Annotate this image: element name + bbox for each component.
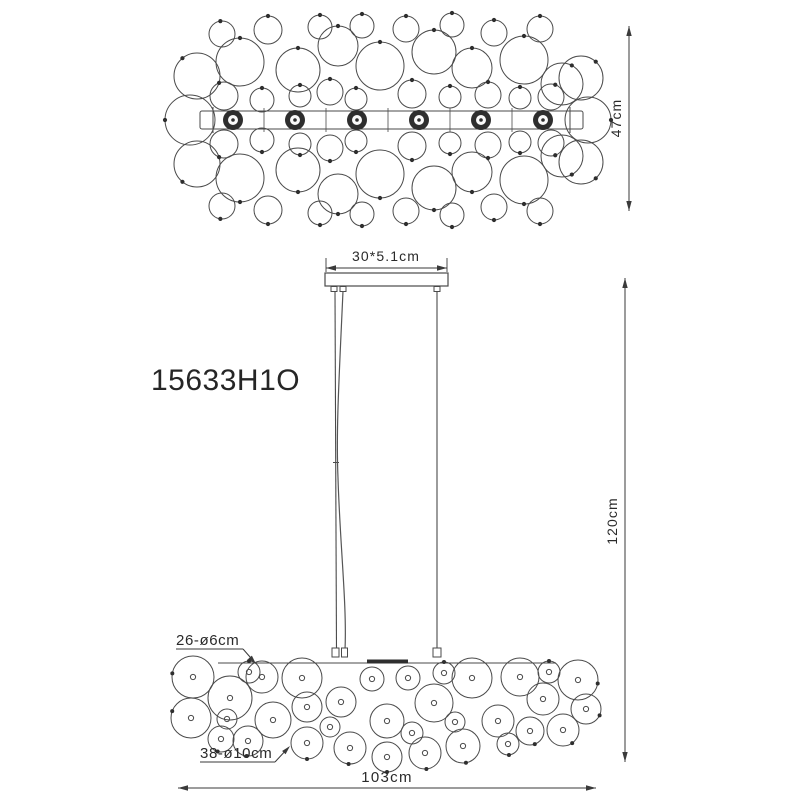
bubble-mount-ring <box>546 669 551 674</box>
bubble-stem-tip <box>170 671 174 675</box>
bubble <box>246 661 278 693</box>
bubble-stem-tip <box>170 709 174 713</box>
bubble <box>174 141 220 187</box>
bubble <box>250 128 274 154</box>
bubble-stem-tip <box>570 172 574 176</box>
bubble <box>356 150 404 200</box>
bubble-stem-tip <box>410 78 414 82</box>
bubble <box>412 166 456 212</box>
width-dimension-label: 103cm <box>361 769 413 786</box>
bubble <box>317 135 343 163</box>
bubble-mount-ring <box>517 674 522 679</box>
bubble <box>209 193 235 221</box>
bubble-stem-tip <box>354 86 358 90</box>
bubble-stem-tip <box>522 34 526 38</box>
bubble-stem-tip <box>404 222 408 226</box>
bubble <box>527 14 553 42</box>
bubble-stem-tip <box>218 19 222 23</box>
bubble <box>289 133 311 157</box>
canopy-outline <box>325 273 448 286</box>
bubble <box>291 727 323 761</box>
ceiling-canopy: 30*5.1cm <box>325 248 448 292</box>
technical-drawing: 47cm 15633H1O 30*5.1cm <box>0 0 800 800</box>
bubble-stem-tip <box>533 742 537 746</box>
bubble <box>308 201 332 227</box>
bubble <box>516 717 544 746</box>
bubble <box>360 667 384 691</box>
height-dimension-label: 120cm <box>604 497 620 545</box>
arrow-down-icon <box>622 752 627 762</box>
bubble-mount-ring <box>540 696 545 701</box>
bubble <box>527 198 553 226</box>
power-cord <box>337 291 345 650</box>
bubble-mount-ring <box>347 745 352 750</box>
bubble-mount-ring <box>527 728 532 733</box>
bubble-stem-tip <box>553 83 557 87</box>
lamp-socket-icon <box>533 110 553 130</box>
side-view: 15633H1O 30*5.1cm <box>151 248 628 791</box>
bubble-stem-tip <box>180 56 184 60</box>
bubble <box>440 203 464 229</box>
bubble-stem-tip <box>486 156 490 160</box>
bubble <box>482 705 514 737</box>
bubble-stem-tip <box>266 222 270 226</box>
bubble <box>401 722 423 744</box>
bubble-stem-tip <box>404 14 408 18</box>
drawing-canvas: 47cm 15633H1O 30*5.1cm <box>0 0 800 800</box>
bubble-stem-tip <box>486 80 490 84</box>
bubble-stem-tip <box>360 224 364 228</box>
bubble-stem-tip <box>238 36 242 40</box>
top-view: 47cm <box>163 11 632 229</box>
bubble-stem-tip <box>378 40 382 44</box>
bubble-stem-tip <box>492 218 496 222</box>
large-globes-label: 38-ø10cm <box>200 745 272 762</box>
suspension-cables <box>332 291 441 657</box>
bubble-stem-tip <box>450 225 454 229</box>
bubble-mount-ring <box>422 750 427 755</box>
bubble-mount-ring <box>245 738 250 743</box>
bubble-mount-ring <box>304 740 309 745</box>
bubble <box>501 658 539 696</box>
arrow-up-icon <box>626 26 631 36</box>
bubble <box>350 12 374 38</box>
lamp-socket-icon <box>409 110 429 130</box>
bubble <box>541 63 583 105</box>
bubble <box>334 732 366 766</box>
cable-fitting <box>342 648 348 657</box>
bubble-stem-tip <box>448 152 452 156</box>
arrow-left-icon <box>178 785 188 790</box>
bubble-stem-tip <box>522 202 526 206</box>
bubble <box>475 132 501 160</box>
bubble <box>509 131 531 155</box>
bubble <box>527 683 559 715</box>
bubble <box>409 737 441 771</box>
cable-gland <box>340 287 346 292</box>
bubble-mount-ring <box>409 730 414 735</box>
bubble-stem-tip <box>238 200 242 204</box>
depth-dimension-label: 47cm <box>608 99 624 138</box>
bubble <box>326 687 356 717</box>
bubble-stem-tip <box>518 151 522 155</box>
bubble-stem-tip <box>594 60 598 64</box>
bubble <box>440 11 464 37</box>
cable-gland <box>331 287 337 292</box>
bubble <box>209 19 235 47</box>
bubble <box>396 666 420 690</box>
bubble <box>170 698 211 738</box>
bubble-stem-tip <box>318 13 322 17</box>
bubble-stem-tip <box>218 217 222 221</box>
bubble-stem-tip <box>266 14 270 18</box>
bubble <box>170 656 214 698</box>
bubble <box>216 154 264 204</box>
cable-fitting <box>433 648 441 657</box>
bubble <box>538 130 564 157</box>
bubble <box>475 80 501 108</box>
bubble <box>558 660 600 700</box>
bubble <box>439 132 461 156</box>
lamp-socket-icon <box>223 110 243 130</box>
bubble-stem-tip <box>492 18 496 22</box>
bubble-stem-tip <box>470 46 474 50</box>
width-dimension: 103cm <box>178 769 596 791</box>
bubble-stem-tip <box>547 659 551 663</box>
bubble-stem-tip <box>470 190 474 194</box>
bubble-mount-ring <box>188 715 193 720</box>
bubble-stem-tip <box>570 63 574 67</box>
bubble <box>398 132 426 162</box>
bubble <box>345 130 367 154</box>
bubble-mount-ring <box>452 719 457 724</box>
bubble-stem-tip <box>217 81 221 85</box>
bubble-stem-tip <box>328 159 332 163</box>
bubble <box>282 658 322 698</box>
product-code: 15633H1O <box>151 364 300 397</box>
bubble-mount-ring <box>299 675 304 680</box>
bubble-stem-tip <box>163 118 167 122</box>
bubble-stem-tip <box>538 14 542 18</box>
arrow-right-icon <box>437 265 447 270</box>
bubble-mount-ring <box>460 743 465 748</box>
bubble <box>393 14 419 42</box>
bubble <box>208 676 252 720</box>
lamp-socket-icon <box>285 110 305 130</box>
bubble <box>541 135 583 177</box>
bubble-stem-tip <box>347 762 351 766</box>
bubble-mount-ring <box>560 727 565 732</box>
bubble-mount-ring <box>369 676 374 681</box>
bubble <box>216 36 264 86</box>
arrow-up-icon <box>622 278 627 288</box>
bubble <box>250 86 274 112</box>
bubble-mount-ring <box>583 706 588 711</box>
bubble-stem-tip <box>570 741 574 745</box>
canopy-dimension-label: 30*5.1cm <box>352 248 420 264</box>
bubble-mount-ring <box>575 677 580 682</box>
bubble-mount-ring <box>227 695 232 700</box>
cable-gland <box>434 287 440 292</box>
bubble <box>481 18 507 46</box>
bubble <box>497 733 519 757</box>
bubble <box>398 78 426 108</box>
bubble <box>345 86 367 110</box>
bubble-stem-tip <box>298 83 302 87</box>
bubble <box>412 28 456 74</box>
bubble-stem-tip <box>442 660 446 664</box>
bubble <box>254 196 282 226</box>
bubble-stem-tip <box>217 155 221 159</box>
bubble <box>356 40 404 90</box>
bubble <box>318 174 358 216</box>
height-dimension: 120cm <box>604 278 628 762</box>
bubble-mount-ring <box>431 700 436 705</box>
lamp-socket-icon <box>471 110 491 130</box>
frame-center-bar <box>367 660 408 664</box>
bubble <box>538 83 564 110</box>
bubble-stem-tip <box>354 150 358 154</box>
bubble <box>254 14 282 44</box>
bubble <box>565 97 613 143</box>
bubble-mount-ring <box>259 674 264 679</box>
bubble-stem-tip <box>260 150 264 154</box>
bubble <box>350 202 374 228</box>
bubble-mount-ring <box>469 675 474 680</box>
bubble <box>317 77 343 105</box>
bubble <box>174 53 220 99</box>
bubble-mount-ring <box>218 736 223 741</box>
bubble-stem-tip <box>538 222 542 226</box>
bubble-mount-ring <box>270 717 275 722</box>
bubble-stem-tip <box>598 713 602 717</box>
bubble-mount-ring <box>505 741 510 746</box>
bubble-stem-tip <box>594 176 598 180</box>
bubble-stem-tip <box>328 77 332 81</box>
cable-fitting <box>332 648 339 657</box>
bubble <box>500 156 548 206</box>
bubble-stem-tip <box>360 12 364 16</box>
bubble-stem-tip <box>336 24 340 28</box>
bubble-mount-ring <box>384 718 389 723</box>
bubble-stem-tip <box>296 190 300 194</box>
mounting-bar-outline <box>200 111 583 129</box>
bubble-mount-ring <box>384 754 389 759</box>
bubble <box>320 717 340 737</box>
bubble-stem-tip <box>260 86 264 90</box>
depth-dimension: 47cm <box>608 26 632 211</box>
bubble-mount-ring <box>495 718 500 723</box>
bubble-stem-tip <box>432 28 436 32</box>
bubble-stem-tip <box>378 196 382 200</box>
bubble <box>163 95 215 145</box>
bubble-stem-tip <box>298 153 302 157</box>
bubble-stem-tip <box>432 208 436 212</box>
small-globes-label: 26-ø6cm <box>176 632 239 649</box>
bubble <box>370 704 404 738</box>
arrow-right-icon <box>586 785 596 790</box>
bubble-stem-tip <box>305 757 309 761</box>
bubble-stem-tip <box>410 158 414 162</box>
bubble-stem-tip <box>553 153 557 157</box>
bubble-stem-tip <box>424 767 428 771</box>
bubble <box>393 198 419 226</box>
bubble <box>481 194 507 222</box>
bubble <box>500 34 548 84</box>
bubble-stem-tip <box>464 761 468 765</box>
bubble <box>439 84 461 108</box>
large-globes-callout: 38-ø10cm <box>200 745 290 762</box>
arrow-down-icon <box>626 201 631 211</box>
bubble-mount-ring <box>441 670 446 675</box>
bubble-stem-tip <box>507 753 511 757</box>
bubble-mount-ring <box>338 699 343 704</box>
bubble-mount-ring <box>327 724 332 729</box>
bubble <box>289 83 311 107</box>
small-globes-callout: 26-ø6cm <box>176 632 256 664</box>
bubble-stem-tip <box>318 223 322 227</box>
steel-cable <box>335 291 337 653</box>
bubble <box>547 714 579 746</box>
lamp-socket-icon <box>347 110 367 130</box>
bubble <box>308 13 332 39</box>
bubble-stem-tip <box>448 84 452 88</box>
bubble-mount-ring <box>304 704 309 709</box>
bubble-stem-tip <box>450 11 454 15</box>
bubble-stem-tip <box>180 180 184 184</box>
bubble <box>509 85 531 109</box>
bubble <box>318 24 358 66</box>
bubble-stem-tip <box>596 681 600 685</box>
bubble-stem-tip <box>296 46 300 50</box>
bubble <box>446 729 480 765</box>
arrow-left-icon <box>326 265 336 270</box>
bubble <box>292 692 322 722</box>
bubble-mount-ring <box>190 674 195 679</box>
bubble-mount-ring <box>405 675 410 680</box>
bubble-stem-tip <box>336 212 340 216</box>
bubble <box>452 658 492 698</box>
bubble-stem-tip <box>518 85 522 89</box>
